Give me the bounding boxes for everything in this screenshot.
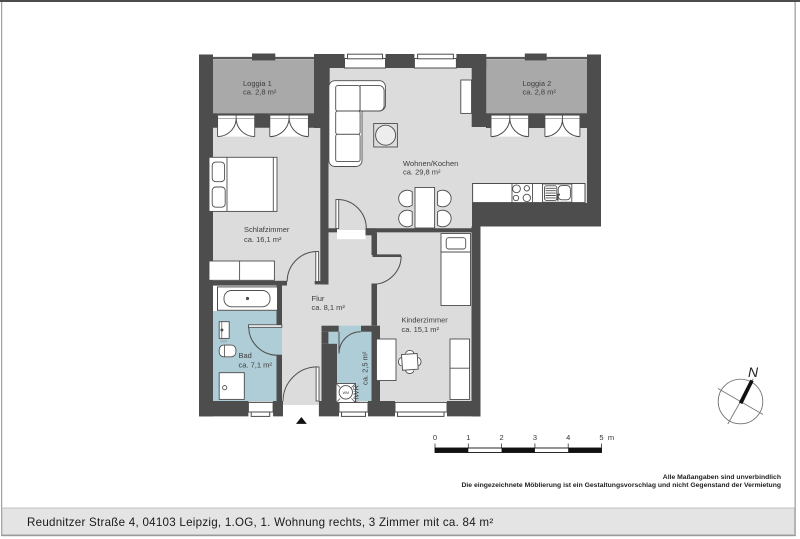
svg-text:Wohnen/Kochen: Wohnen/Kochen	[403, 159, 458, 168]
svg-text:N: N	[748, 364, 759, 380]
svg-text:ca. 2,5 m²: ca. 2,5 m²	[361, 351, 370, 385]
svg-text:Loggia 2: Loggia 2	[523, 79, 552, 88]
svg-text:4: 4	[566, 433, 570, 442]
svg-text:3: 3	[533, 433, 537, 442]
svg-text:5: 5	[599, 433, 603, 442]
svg-text:2: 2	[500, 433, 504, 442]
svg-text:0: 0	[433, 433, 437, 442]
svg-text:ca. 16,1 m²: ca. 16,1 m²	[244, 235, 282, 244]
svg-text:Die eingezeichnete Möblierung: Die eingezeichnete Möblierung ist ein Ge…	[461, 482, 781, 489]
svg-text:Flur: Flur	[312, 294, 325, 303]
svg-text:ca. 29,8 m²: ca. 29,8 m²	[403, 168, 441, 177]
svg-text:Alle Maßangaben sind unverbind: Alle Maßangaben sind unverbindlich	[663, 474, 781, 481]
svg-text:WM: WM	[343, 391, 349, 395]
svg-text:Bad: Bad	[239, 351, 252, 360]
svg-text:Loggia 1: Loggia 1	[243, 79, 272, 88]
svg-text:ca. 2,8 m²: ca. 2,8 m²	[523, 88, 557, 97]
svg-text:ca. 15,1 m²: ca. 15,1 m²	[402, 325, 440, 334]
svg-text:Reudnitzer Straße 4, 04103 Lei: Reudnitzer Straße 4, 04103 Leipzig, 1.OG…	[27, 516, 493, 529]
svg-text:ca. 2,8 m²: ca. 2,8 m²	[243, 88, 277, 97]
svg-text:Schlafzimmer: Schlafzimmer	[244, 225, 290, 234]
svg-text:ca. 7,1 m²: ca. 7,1 m²	[239, 360, 273, 369]
svg-text:Kinderzimmer: Kinderzimmer	[402, 316, 449, 325]
svg-text:1: 1	[466, 433, 470, 442]
svg-text:HWR: HWR	[352, 385, 361, 403]
svg-text:ca. 8,1 m²: ca. 8,1 m²	[312, 303, 346, 312]
svg-text:m: m	[608, 433, 614, 442]
